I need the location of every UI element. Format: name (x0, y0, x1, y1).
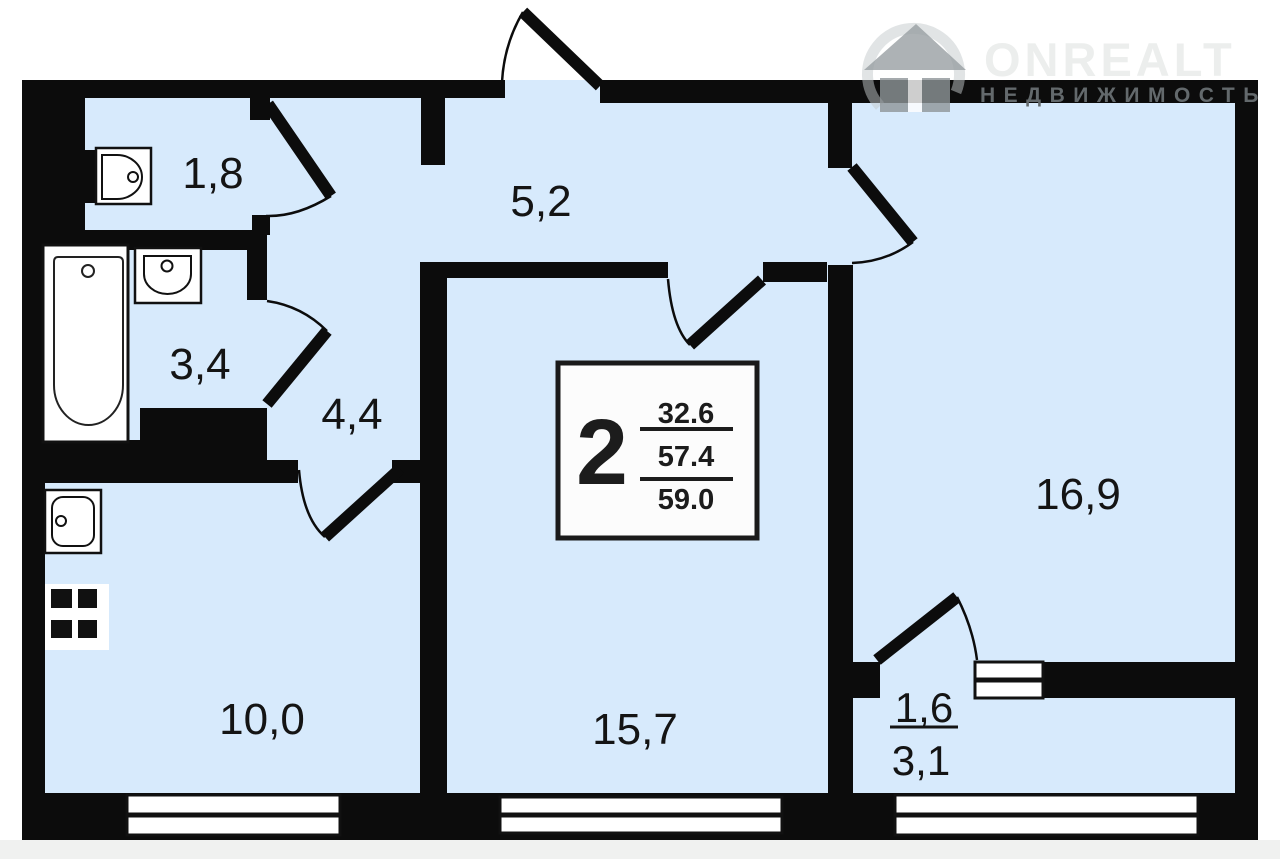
wall-shaft-wc (45, 98, 85, 238)
room-label-kitchen: 10,0 (219, 695, 305, 744)
wall-outer-right (1235, 80, 1258, 840)
logo-brand-text: ONREALT (984, 33, 1236, 86)
wall-balcony-divider (1043, 662, 1235, 698)
bottom-margin (0, 840, 1280, 859)
info-total-area: 59.0 (658, 484, 714, 516)
bathtub-drain (82, 265, 94, 277)
wall-living-bedroom-divider (828, 265, 853, 793)
toilet-flush (128, 172, 138, 182)
info-box: 2 32.6 57.4 59.0 (558, 363, 757, 538)
entrance-door (502, 12, 600, 86)
stove-icon (45, 584, 109, 650)
bathtub-inner (54, 257, 123, 425)
kitchen-sink-icon (45, 490, 101, 553)
washbasin-icon (135, 248, 201, 303)
watermark-logo: ONREALT НЕДВИЖИМОСТЬ (864, 24, 1267, 112)
balcony-area-full: 3,1 (892, 737, 950, 784)
door-leaf (523, 12, 600, 86)
toilet-tank (80, 150, 96, 203)
stove-burner (78, 589, 97, 608)
wall-bedroom-door-stub (828, 98, 852, 168)
room-label-wc: 1,8 (182, 149, 243, 198)
toilet-icon (80, 148, 151, 204)
bathtub-icon (43, 245, 128, 442)
wall-balcony-stub (853, 662, 880, 698)
kitchen-window (127, 795, 340, 835)
balcony-window (895, 795, 1198, 835)
house-door (908, 78, 922, 112)
room-label-hall-upper: 5,2 (510, 177, 571, 226)
wall-kitchen-living-divider (420, 262, 447, 793)
washbasin-drain (162, 261, 173, 272)
living-room-window (500, 797, 782, 833)
wall-kitchen-top (22, 460, 298, 483)
stove-burner (51, 620, 72, 638)
floor-plan-page: 1,8 5,2 3,4 4,4 16,9 10,0 15,7 1,6 3,1 2… (0, 0, 1280, 859)
door-swing-arc (502, 12, 523, 82)
wall-wc-door-jamb-bottom (252, 215, 270, 235)
info-living-area: 32.6 (658, 398, 714, 430)
wall-entry-stub (421, 95, 445, 165)
room-label-bedroom: 16,9 (1035, 470, 1121, 519)
stove-burner (51, 589, 72, 608)
floorplan-svg: 1,8 5,2 3,4 4,4 16,9 10,0 15,7 1,6 3,1 2… (0, 0, 1280, 859)
balcony-block-window (975, 662, 1043, 698)
info-room-count: 2 (576, 400, 628, 504)
wall-shaft-bathroom (140, 408, 267, 462)
room-label-hall-lower: 4,4 (321, 390, 382, 439)
wall-bathroom-right (247, 250, 267, 300)
balcony-area-reduced: 1,6 (895, 684, 953, 731)
wall-living-door-jamb (763, 262, 827, 282)
info-area-secondary: 57.4 (658, 441, 714, 473)
stove-burner (78, 620, 97, 638)
kitchen-sink-drain (56, 516, 66, 526)
room-label-bathroom: 3,4 (169, 340, 230, 389)
logo-tagline-text: НЕДВИЖИМОСТЬ (980, 84, 1267, 107)
room-label-living: 15,7 (592, 705, 678, 754)
wall-hall-living-divider (445, 262, 668, 278)
